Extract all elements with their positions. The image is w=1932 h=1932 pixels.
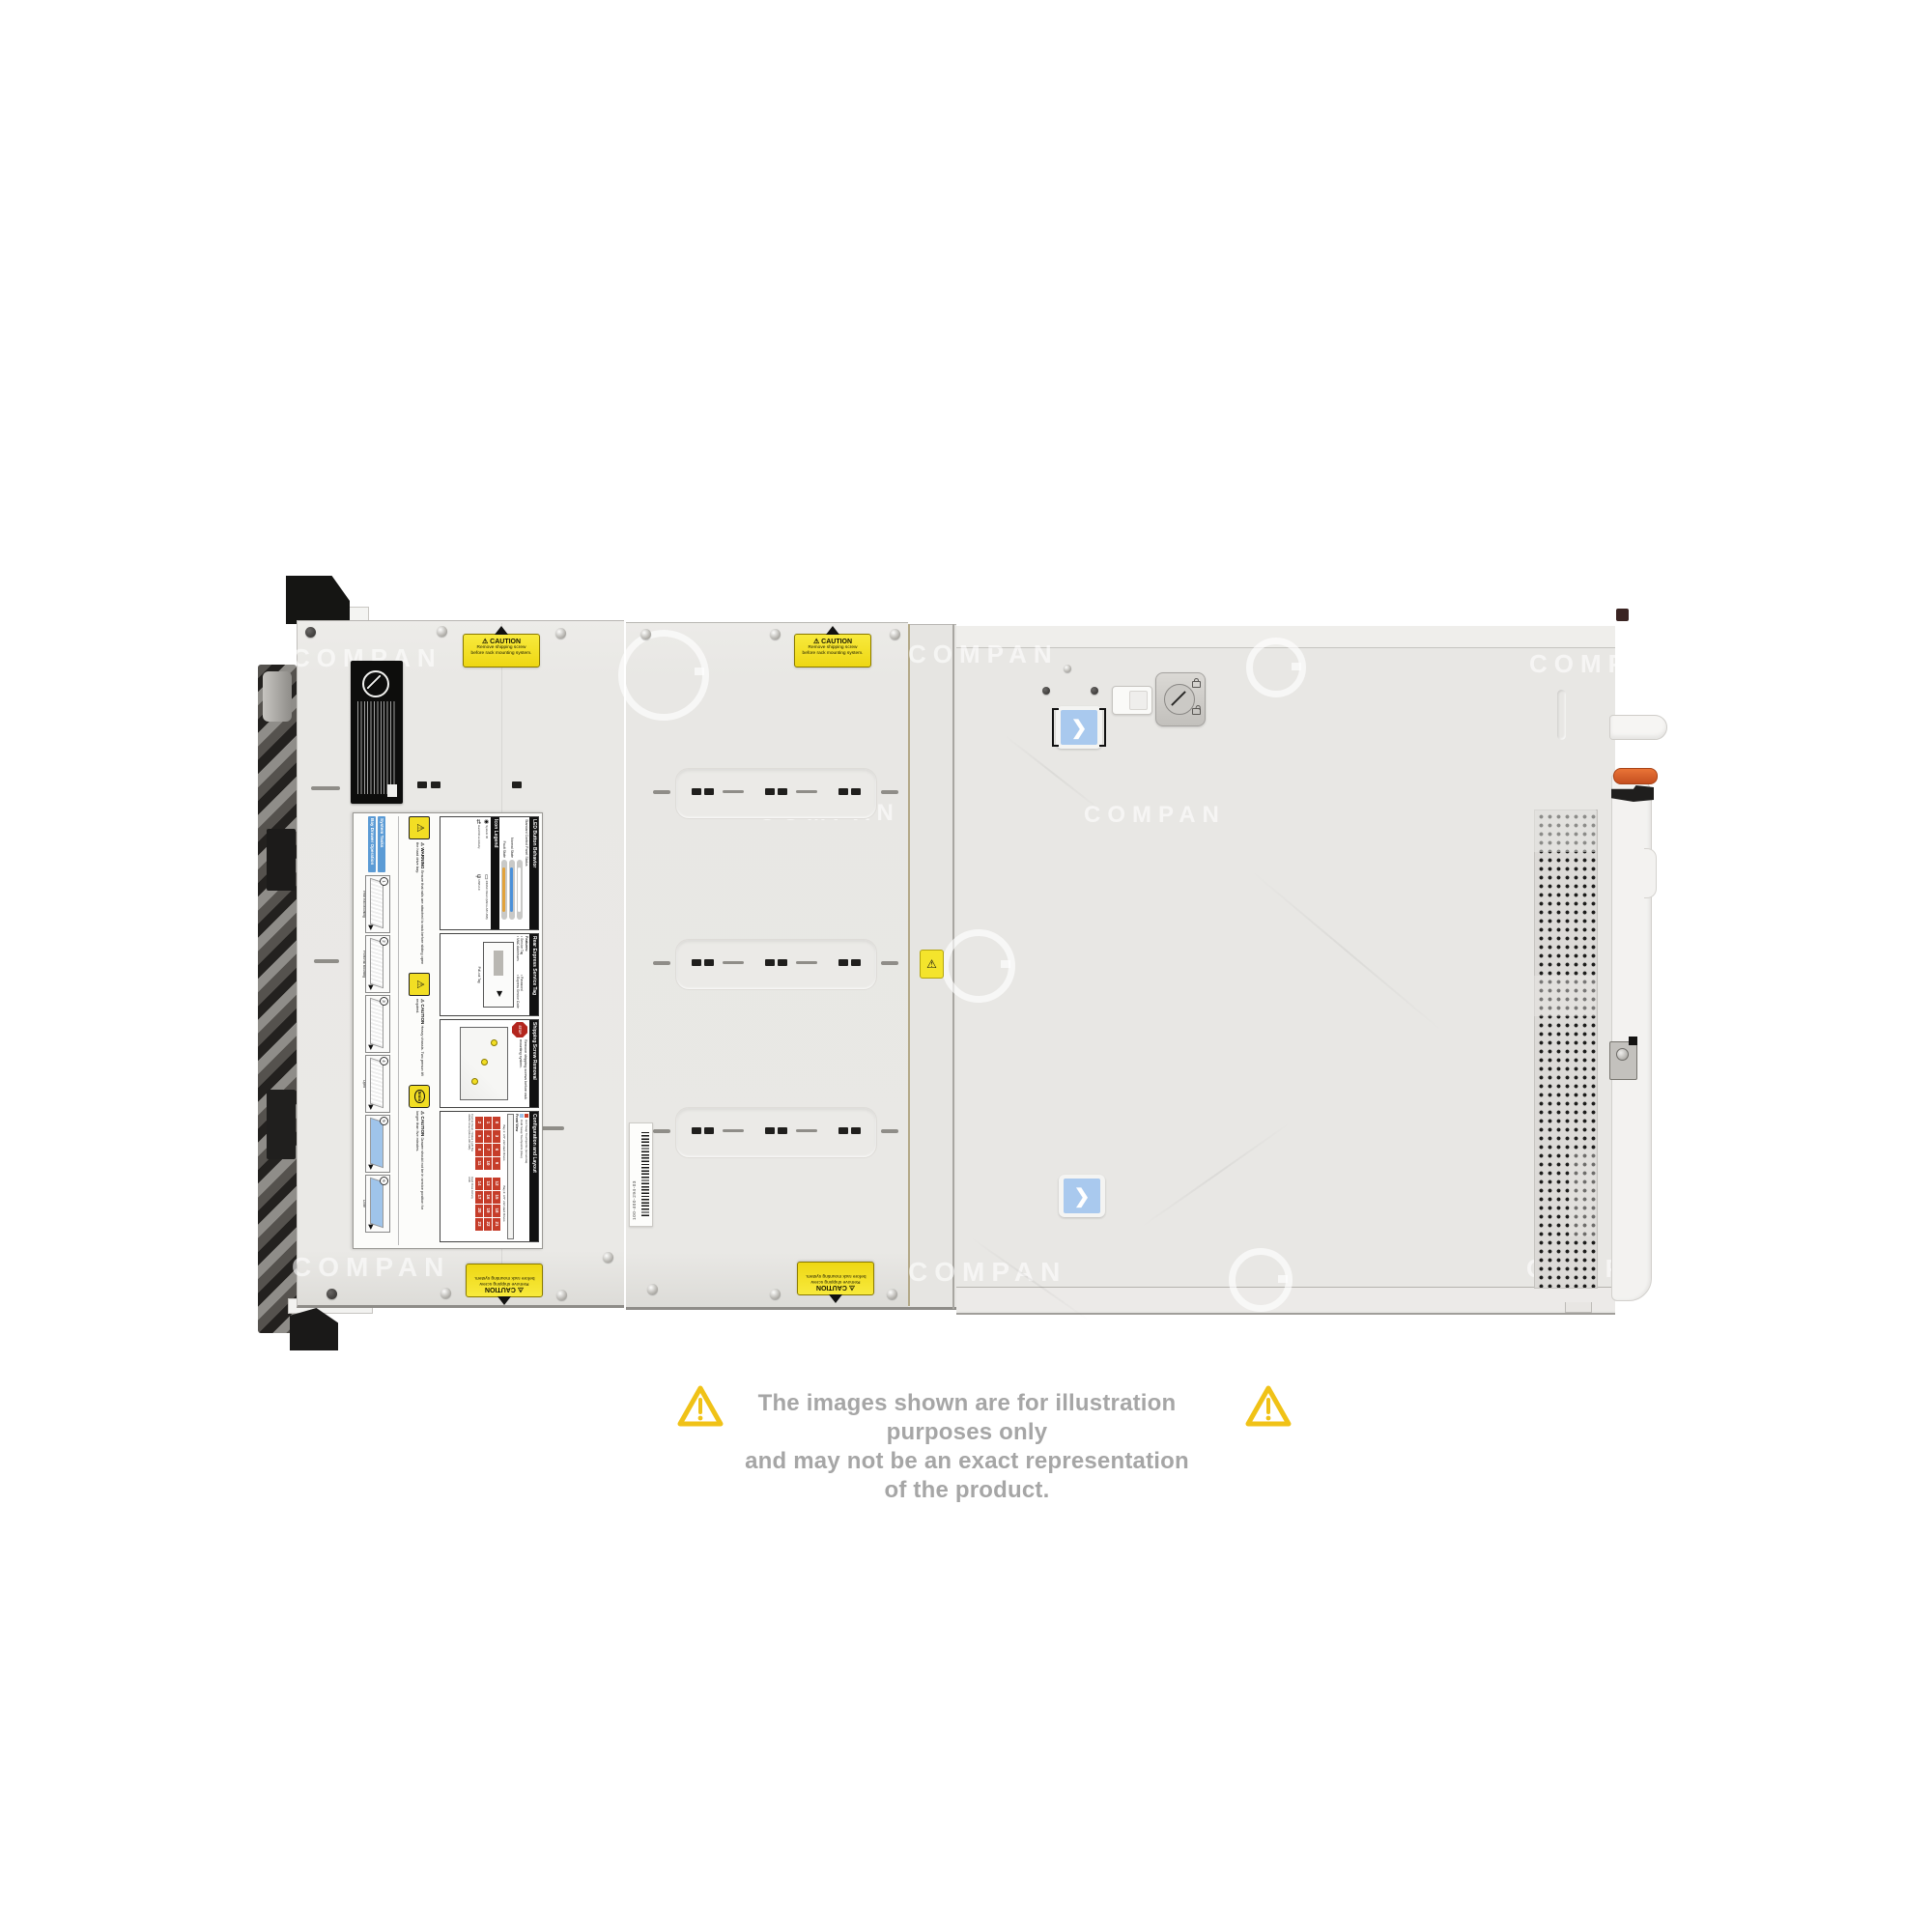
callout-labels: Control Panel / Status Light BarHard Dri… xyxy=(468,1112,474,1241)
vent-dash xyxy=(881,790,898,794)
caution-title: CAUTION xyxy=(490,639,521,645)
product-photo-canvas: COMPAN COMPAN COMPAN COMPAN COMPAN COMPA… xyxy=(0,0,1932,1932)
screw xyxy=(770,629,781,639)
rail-bracket xyxy=(1609,1041,1637,1080)
caution-line: before rack mounting system. xyxy=(467,1275,542,1281)
recessed-handle-row xyxy=(675,939,877,990)
caution-title: CAUTION xyxy=(816,1284,847,1291)
legend-label: System ID xyxy=(484,825,487,838)
disclaimer-line2: and may not be an exact representation o… xyxy=(732,1447,1202,1505)
repeat-item: 2 xyxy=(475,1117,483,1129)
disclaimer: The images shown are for illustration pu… xyxy=(732,1389,1202,1505)
cold-swap-legend-swatch xyxy=(520,1114,524,1118)
keylock-dial-icon xyxy=(1164,684,1195,715)
recessed-handle-row xyxy=(675,768,877,819)
shipping-text: Remove shipping screws before rack mount… xyxy=(512,1039,527,1105)
warning-triangle-icon: ⚠ xyxy=(518,1286,524,1293)
instruction-label-panel: LED Button Behavior Standard Control Pan… xyxy=(353,812,543,1249)
hot-surface-warning-sticker: ⚠ xyxy=(920,950,944,979)
rear-cover-top-band xyxy=(956,626,1615,648)
repeat-item: 11 xyxy=(475,1157,483,1170)
caution-title: CAUTION xyxy=(420,1116,425,1136)
cover-slide-latch xyxy=(1112,686,1152,715)
screw xyxy=(1042,687,1050,695)
section-header: Configuration and Layout xyxy=(529,1112,538,1241)
screw xyxy=(647,1284,658,1294)
screw xyxy=(556,1290,567,1300)
vent-dash xyxy=(311,786,340,790)
panel-seam-line xyxy=(952,624,954,1309)
screw xyxy=(770,1289,781,1299)
repeat-item: Express Service Code xyxy=(516,975,520,1013)
repeat-item: 0 xyxy=(493,1117,500,1129)
vent-dash xyxy=(541,1126,564,1130)
repeat-item: 3 xyxy=(493,1130,500,1143)
screw xyxy=(437,626,447,637)
caution-title: CAUTION xyxy=(821,639,852,645)
repeat-item: 18 xyxy=(493,1205,500,1217)
pull-out-tag-diagram xyxy=(483,942,514,1008)
system-id-icon: ◉ xyxy=(483,819,489,824)
caution-title: CAUTION xyxy=(485,1286,516,1293)
pinch-hazard-icon: ⚠ xyxy=(409,816,430,839)
repeat-item: 12 xyxy=(493,1178,500,1190)
cover-keylock xyxy=(1155,672,1206,726)
repeat-item: 7 xyxy=(484,1144,492,1156)
rear-handle xyxy=(1609,715,1667,740)
vent-dash xyxy=(653,1129,670,1133)
system-tasks-strip: System Tasks Bay Drawer Operation 1 Rear… xyxy=(356,816,399,1245)
task-step: 4 Open xyxy=(361,1055,390,1113)
screw xyxy=(890,629,900,639)
vent-dash xyxy=(881,961,898,965)
configuration-layout-section: Configuration and Layout Hot Swap Touchp… xyxy=(440,1111,539,1242)
legend-label: Hot Swap Touchpoints (terracotta) xyxy=(525,1120,528,1163)
icon-legend-header: Icon Legend xyxy=(491,817,499,929)
system-tasks-header: System Tasks xyxy=(378,816,385,872)
caution-line: Remove shipping screw xyxy=(798,1278,873,1284)
repeat-item: 5 xyxy=(475,1130,483,1143)
rear-cover-tab xyxy=(1565,1302,1592,1313)
front-bezel-corner-bottom xyxy=(290,1308,338,1350)
led-bar-fault xyxy=(501,860,507,920)
rail-pin xyxy=(1616,609,1629,621)
repeat-item: 15 xyxy=(493,1191,500,1204)
led-bar-normal xyxy=(509,860,515,920)
features-list: Service TagPasswordMAC AddressesExpress … xyxy=(516,934,524,1015)
panel-seam-line xyxy=(908,624,910,1306)
task-step: 6 Close xyxy=(361,1175,390,1233)
caution-sticker-rotated: ⚠ CAUTION Remove shipping screw before r… xyxy=(466,1264,543,1297)
repeat-item: 1 xyxy=(484,1117,492,1129)
led-state-label: Normal State xyxy=(510,819,514,858)
caution-sticker: ⚠ CAUTION Remove shipping screw before r… xyxy=(463,634,540,668)
led-state-label: Fault State xyxy=(502,819,506,858)
caution-title: CAUTION xyxy=(420,1004,425,1024)
legend-label: iDRAC Direct (Micro-AB USB) xyxy=(484,881,487,920)
screw xyxy=(1091,687,1098,695)
bay1-drive-grid: 03691471025811 xyxy=(475,1117,500,1170)
task-step: 3 xyxy=(361,995,390,1053)
task-step: 1 Rear Rail Mounting xyxy=(361,875,390,933)
front-view-diagram xyxy=(507,1114,514,1239)
repeat-item: 9 xyxy=(493,1157,500,1170)
warning-triangle-icon: ⚠ xyxy=(849,1284,855,1291)
repeat-item: 6 xyxy=(493,1144,500,1156)
rear-cover-bottom-strip xyxy=(956,1287,1615,1311)
repeat-item: iDRAC Direct (Micro-AB USB) xyxy=(468,1114,470,1177)
legend-label: USB 2.0 xyxy=(476,879,479,890)
led-bar xyxy=(517,860,523,920)
five-minute-clock-icon: 5min xyxy=(409,1085,430,1108)
hot-swap-legend-swatch xyxy=(525,1114,528,1118)
barcode-stripes xyxy=(641,1131,649,1216)
repeat-item: Password xyxy=(520,975,524,1013)
bay1-block: Bay 1: 3.5" x12 Hard Drives 036914710258… xyxy=(474,1114,505,1172)
bay1-label: Bay 1: 3.5" x12 Hard Drives xyxy=(501,1114,505,1172)
caution-line: Remove shipping screw xyxy=(467,1280,542,1286)
legend-label: Hard Drive Activity xyxy=(476,825,479,849)
screw xyxy=(603,1252,613,1263)
repeat-item: 19 xyxy=(484,1205,492,1217)
screw xyxy=(440,1288,451,1298)
task-step: 5 xyxy=(361,1115,390,1173)
vent-dash xyxy=(653,961,670,965)
lid-emboss-slot xyxy=(1557,690,1566,740)
repeat-item: 8 xyxy=(475,1144,483,1156)
chevron-right-icon: ❯ xyxy=(1074,1184,1091,1208)
cover-release-sticker: ❯ xyxy=(1056,706,1102,749)
screw xyxy=(640,629,651,639)
left-rack-rail xyxy=(258,665,297,1333)
repeat-item: USB xyxy=(468,1177,470,1239)
section-header: LED Button Behavior xyxy=(529,817,538,929)
cover-release-sticker: ❯ xyxy=(1059,1175,1105,1217)
left-rail-knob xyxy=(263,671,292,722)
warning-triangle-icon xyxy=(676,1384,724,1429)
ventilation-shade xyxy=(1534,810,1596,852)
repeat-item: 17 xyxy=(475,1191,483,1204)
section-header: Shipping Screw Removal xyxy=(529,1020,538,1107)
warning-triangle-icon: ⚠ xyxy=(482,639,488,645)
repeat-item: 4 xyxy=(484,1130,492,1143)
shipping-screw-diagram xyxy=(460,1027,508,1100)
screw xyxy=(1064,665,1071,672)
idrac-port-icon: ▭ xyxy=(483,874,489,880)
caution-line: before rack mounting system. xyxy=(464,651,539,657)
chevron-right-icon: ❯ xyxy=(1071,716,1088,740)
repeat-item: 13 xyxy=(484,1178,492,1190)
barcode-sticker: 100-400-294-03 xyxy=(629,1122,653,1227)
disclaimer-line1: The images shown are for illustration pu… xyxy=(732,1389,1202,1447)
caution-sticker: ⚠ CAUTION Remove shipping screw before r… xyxy=(794,634,871,668)
screw xyxy=(887,1289,897,1299)
service-tag-section: Rear Express Service Tag Features: Servi… xyxy=(440,933,539,1016)
front-bezel-corner-top xyxy=(286,576,350,624)
section-header: Rear Express Service Tag xyxy=(529,934,538,1015)
repeat-item: 20 xyxy=(475,1205,483,1217)
lock-open-icon xyxy=(1192,708,1201,715)
screw xyxy=(327,1289,337,1299)
regulatory-symbol-icon xyxy=(362,670,389,697)
regulatory-label xyxy=(351,661,403,804)
bay-drawer-header: Bay Drawer Operation xyxy=(368,816,376,872)
warning-triangle-icon: ⚠ xyxy=(813,639,819,645)
warnings-strip: ⚠ ⚠ WARNING Ensure that rails are attach… xyxy=(401,816,439,1245)
led-button-behavior-section: LED Button Behavior Standard Control Pan… xyxy=(440,816,539,930)
repeat-item: 10 xyxy=(484,1157,492,1170)
warning-triangle-icon: ⚠ xyxy=(926,957,937,971)
caution-sticker-rotated: ⚠ CAUTION Remove shipping screw before r… xyxy=(797,1262,874,1295)
regulatory-fine-print xyxy=(357,701,396,794)
vent-slot xyxy=(512,781,522,788)
vent-dash xyxy=(881,1129,898,1133)
usb-icon: ψ xyxy=(475,874,481,878)
hand-crush-hazard-icon: ⚠ xyxy=(409,973,430,996)
instruction-label-content: LED Button Behavior Standard Control Pan… xyxy=(353,812,543,1249)
warning-triangle-icon xyxy=(1244,1384,1293,1429)
bay2-drive-grid: 121518211316192214172023 xyxy=(475,1178,500,1231)
task-step: 2 Front Rail Mounting xyxy=(361,935,390,993)
repeat-item: 16 xyxy=(484,1191,492,1204)
warning-triangle-icon: ⚠ xyxy=(420,999,425,1003)
barcode-number: 100-400-294-03 xyxy=(632,1129,637,1220)
warning-triangle-icon: ⚠ xyxy=(420,1111,425,1115)
right-rail-bumper xyxy=(1644,848,1657,898)
warning-triangle-icon: ⚠ xyxy=(420,842,425,846)
regulatory-code-box xyxy=(387,784,397,797)
repeat-item: 22 xyxy=(484,1218,492,1231)
bay2-block: Bay 2: 3.5" x12 Hard Drives 121518211316… xyxy=(474,1175,505,1233)
caution-line: before rack mounting system. xyxy=(795,651,870,657)
drive-activity-icon: ⇄ xyxy=(475,819,481,824)
recessed-handle-row xyxy=(675,1107,877,1158)
stop-icon: STOP xyxy=(512,1022,527,1037)
vent-dash xyxy=(314,959,339,963)
lock-closed-icon xyxy=(1192,681,1201,688)
vent-dash xyxy=(653,790,670,794)
left-rail-latch xyxy=(267,1090,296,1159)
diagram-caption: Pull-out Tag xyxy=(477,934,481,1015)
ventilation-shade xyxy=(1534,976,1596,1016)
repeat-item: Service Tag xyxy=(520,936,524,975)
shipping-screw-section: Shipping Screw Removal STOP Remove shipp… xyxy=(440,1019,539,1108)
legend-label: Cold Swap Touchpoints (blue) xyxy=(520,1120,524,1158)
caution-line: before rack mounting system. xyxy=(798,1273,873,1279)
repeat-item: 21 xyxy=(493,1218,500,1231)
screw xyxy=(305,627,316,638)
screw xyxy=(555,628,566,639)
repeat-item: MAC Addresses xyxy=(516,936,520,975)
repeat-item: 14 xyxy=(475,1178,483,1190)
vent-slot xyxy=(417,781,427,788)
left-rail-latch xyxy=(267,829,296,891)
vent-slot xyxy=(431,781,440,788)
warning-title: WARNING xyxy=(420,847,425,868)
ventilation-shade xyxy=(1569,1150,1596,1236)
repeat-item: Hard Drive Activity xyxy=(470,1177,473,1239)
repeat-item: 23 xyxy=(475,1218,483,1231)
release-lever xyxy=(1613,768,1658,784)
bay2-label: Bay 2: 3.5" x12 Hard Drives xyxy=(501,1175,505,1233)
